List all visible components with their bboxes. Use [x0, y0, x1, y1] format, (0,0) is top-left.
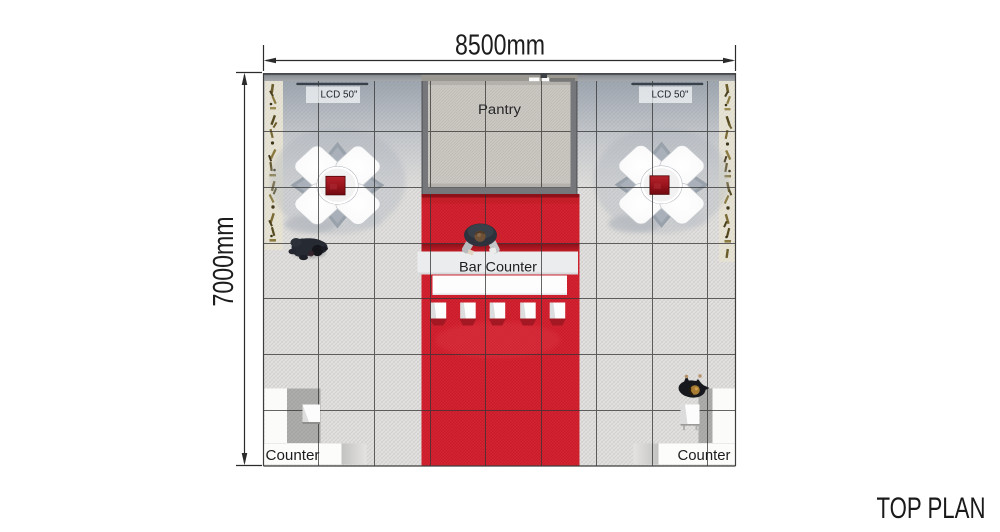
svg-text:Counter: Counter [266, 447, 320, 464]
svg-text:LCD 50": LCD 50" [321, 90, 358, 101]
svg-text:Pantry: Pantry [478, 102, 521, 117]
svg-text:Counter: Counter [678, 447, 731, 464]
svg-text:LCD 50": LCD 50" [652, 90, 689, 101]
svg-text:8500mm: 8500mm [455, 30, 545, 62]
svg-text:Bar Counter: Bar Counter [459, 259, 537, 275]
svg-text:7000mm: 7000mm [208, 217, 240, 307]
svg-text:TOP PLAN: TOP PLAN [877, 492, 986, 525]
